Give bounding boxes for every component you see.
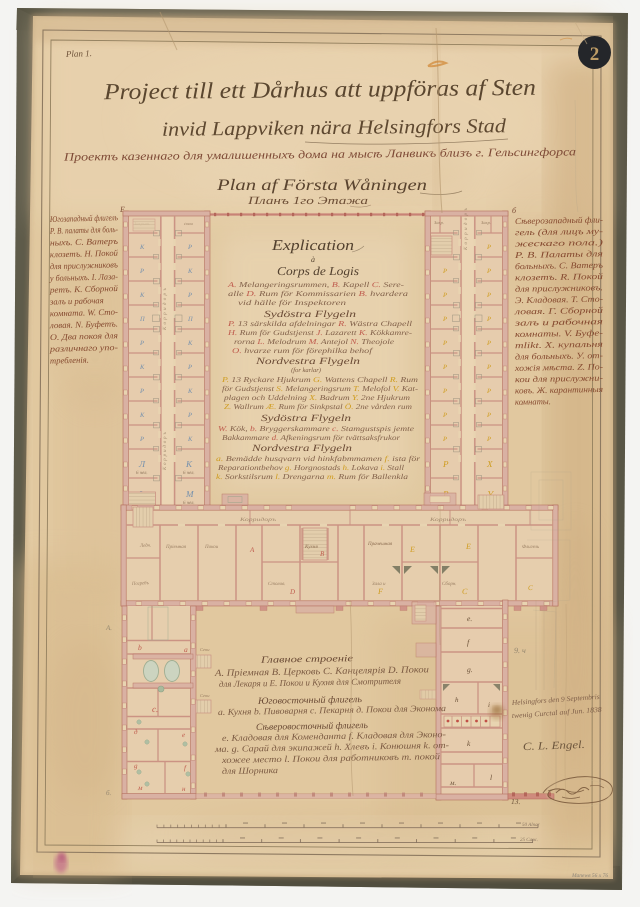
svg-text:Р: Р bbox=[442, 459, 449, 469]
svg-text:Сборн.: Сборн. bbox=[442, 581, 457, 587]
svg-text:м.: м. bbox=[449, 779, 456, 787]
svg-text:для Шорника: для Шорника bbox=[222, 765, 279, 776]
svg-text:C. L. Engel.: C. L. Engel. bbox=[523, 739, 585, 753]
svg-text:g.: g. bbox=[467, 665, 473, 674]
svg-text:Plan af Första Wåningen: Plan af Första Wåningen bbox=[216, 177, 427, 194]
svg-text:a. Bemädde husqvarn vid hin: a. Bemädde husqvarn vid hinkfabmmamen f.… bbox=[216, 454, 420, 463]
svg-text:у больныхъ. I. Лаза-: у больныхъ. I. Лаза- bbox=[49, 271, 118, 283]
svg-text:Е: Е bbox=[465, 542, 471, 551]
svg-text:Р: Р bbox=[486, 268, 491, 275]
svg-text:à: à bbox=[311, 255, 315, 264]
svg-text:О. Два покоя для: О. Два покоя для bbox=[50, 330, 118, 342]
svg-text:i: i bbox=[488, 701, 490, 709]
svg-text:залъ и рабочная: залъ и рабочная bbox=[513, 316, 603, 328]
svg-text:комнаты. V. Буфе-: комнаты. V. Буфе- bbox=[515, 327, 603, 339]
svg-text:Р: Р bbox=[442, 364, 447, 371]
svg-text:Р: Р bbox=[486, 436, 491, 443]
svg-text:А: А bbox=[249, 546, 255, 554]
svg-text:Маnewв 56 x 76: Маnewв 56 x 76 bbox=[571, 873, 608, 879]
svg-text:для прислужниковъ.: для прислужниковъ. bbox=[515, 282, 603, 294]
svg-text:Планъ 1го Этажа: Планъ 1го Этажа bbox=[247, 195, 369, 207]
svg-text:комнаты.: комнаты. bbox=[515, 396, 551, 407]
svg-text:plagen och Uddelning X. Badru: plagen och Uddelning X. Badrum Y. 2ne Hj… bbox=[223, 393, 411, 402]
svg-text:h: h bbox=[455, 696, 459, 704]
svg-text:D: D bbox=[289, 588, 295, 596]
svg-text:9. ч: 9. ч bbox=[514, 646, 526, 655]
svg-text:жескаго пола.): жескаго пола.) bbox=[515, 237, 603, 249]
svg-text:l: l bbox=[490, 773, 492, 782]
svg-text:для больныхъ. У. от-: для больныхъ. У. от- bbox=[515, 350, 603, 362]
svg-text:Прачешная: Прачешная bbox=[367, 541, 393, 547]
svg-text:H. Rum för Gudstjenst J. Laza: H. Rum för Gudstjenst J. Lazarett K. Kök… bbox=[227, 328, 413, 337]
svg-text:тlikt. Х. купальня: тlikt. Х. купальня bbox=[515, 339, 603, 351]
svg-text:k. Sorkstilsrum l. Drengarna: k. Sorkstilsrum l. Drengarna m. Rum för … bbox=[216, 472, 408, 481]
svg-text:Р: Р bbox=[139, 388, 144, 395]
svg-text:Корридоръ: Корридоръ bbox=[162, 288, 168, 331]
svg-text:Р: Р bbox=[442, 412, 447, 419]
svg-text:ловая. N. Буфетъ.: ловая. N. Буфетъ. bbox=[49, 318, 118, 330]
svg-text:Р: Р bbox=[187, 292, 192, 299]
svg-text:Х: Х bbox=[486, 459, 493, 469]
svg-text:Plan 1.: Plan 1. bbox=[65, 48, 92, 59]
svg-text:А.: А. bbox=[105, 624, 112, 632]
svg-text:Пріемная: Пріемная bbox=[165, 544, 187, 550]
svg-text:Главное строеніе: Главное строеніе bbox=[260, 654, 353, 666]
svg-text:O. hvarze rum för förephilk: O. hvarze rum för förephilka behof bbox=[232, 346, 373, 355]
svg-text:Р. В. палаты для боль-: Р. В. палаты для боль- bbox=[49, 224, 118, 236]
svg-text:2: 2 bbox=[590, 44, 600, 65]
svg-text:ретъ. К. Сборной: ретъ. К. Сборной bbox=[49, 283, 119, 295]
svg-text:залъ и рабочая: залъ и рабочая bbox=[49, 295, 104, 306]
svg-text:Югозападный флигель: Югозападный флигель bbox=[49, 212, 118, 224]
svg-text:К: К bbox=[187, 268, 193, 275]
svg-text:Закр.: Закр. bbox=[434, 220, 444, 225]
svg-text:Р: Р bbox=[486, 244, 491, 251]
svg-text:F: F bbox=[377, 587, 383, 596]
svg-text:В: В bbox=[320, 550, 325, 558]
svg-text:Р: Р bbox=[139, 268, 144, 275]
svg-text:Р: Р bbox=[442, 292, 447, 299]
svg-text:Corps de Logis: Corps de Logis bbox=[277, 264, 359, 278]
svg-text:Погребъ: Погребъ bbox=[131, 580, 150, 587]
svg-text:(for karlar): (for karlar) bbox=[291, 367, 321, 374]
svg-text:К: К bbox=[187, 388, 193, 395]
svg-text:а: а bbox=[184, 645, 188, 654]
svg-text:б.: б. bbox=[106, 789, 112, 797]
svg-text:Bakkammare d. Afkeningsrum fö: Bakkammare d. Afkeningsrum för tvättsaks… bbox=[222, 433, 400, 442]
svg-text:м: м bbox=[137, 784, 143, 792]
svg-text:6 чел.: 6 чел. bbox=[136, 470, 148, 476]
svg-text:Р: Р bbox=[139, 340, 144, 347]
svg-text:Р: Р bbox=[442, 388, 447, 395]
svg-text:Л: Л bbox=[138, 459, 146, 469]
svg-text:К: К bbox=[139, 412, 145, 419]
svg-text:13.: 13. bbox=[511, 797, 521, 806]
svg-text:Z. Wallrum Æ. Rum för Sinkpst: Z. Wallrum Æ. Rum för Sinkpstal Ö. 2ne v… bbox=[224, 402, 413, 411]
svg-text:ковъ. Ж. карантинныя: ковъ. Ж. карантинныя bbox=[515, 384, 603, 396]
svg-text:хожія мѣста. Z. По-: хожія мѣста. Z. По- bbox=[514, 361, 603, 373]
svg-text:комната. W. Сто-: комната. W. Сто- bbox=[50, 307, 118, 319]
svg-text:Р: Р bbox=[139, 436, 144, 443]
svg-text:К: К bbox=[139, 292, 145, 299]
svg-text:Р: Р bbox=[486, 316, 491, 323]
svg-text:Кухня: Кухня bbox=[304, 544, 318, 550]
svg-text:6 чел.: 6 чел. bbox=[183, 470, 195, 476]
svg-text:гель (для лицъ му-: гель (для лицъ му- bbox=[515, 226, 603, 238]
svg-text:vid hälle för Inspektoren: vid hälle för Inspektoren bbox=[238, 298, 346, 307]
svg-text:различнаго упо-: различнаго упо- bbox=[49, 342, 119, 354]
svg-text:Р. В. Палаты для: Р. В. Палаты для bbox=[513, 248, 603, 260]
svg-text:Explication: Explication bbox=[271, 238, 354, 254]
svg-text:Ледн.: Ледн. bbox=[139, 542, 152, 549]
svg-text:Р: Р bbox=[486, 292, 491, 299]
svg-text:е.: е. bbox=[467, 614, 472, 623]
svg-text:P. 13 särskilda afdelningar R: P. 13 särskilda afdelningar R. Wästra Ch… bbox=[227, 319, 412, 328]
svg-text:Сени: Сени bbox=[200, 693, 210, 698]
svg-text:Корридоръ: Корридоръ bbox=[239, 517, 277, 523]
svg-text:Р: Р bbox=[187, 244, 192, 251]
svg-text:för Gudstjenst S. Melangering: för Gudstjenst S. Melangeringsrum T. Mel… bbox=[222, 384, 419, 393]
svg-text:ловая. Г. Сборной: ловая. Г. Сборной bbox=[513, 305, 603, 317]
svg-text:Р: Р bbox=[486, 340, 491, 347]
svg-text:Nordvestra Flygeln: Nordvestra Flygeln bbox=[255, 357, 361, 367]
svg-text:кои для прислужни-: кои для прислужни- bbox=[515, 373, 603, 385]
svg-text:К: К bbox=[139, 364, 145, 371]
svg-text:Е: Е bbox=[409, 545, 415, 554]
svg-text:М: М bbox=[185, 489, 194, 499]
svg-text:Reparationtbehov g. Horgnosta: Reparationtbehov g. Horgnostads h. Lokav… bbox=[217, 463, 404, 472]
svg-text:Флигель: Флигель bbox=[522, 544, 540, 550]
svg-text:25 Саж.: 25 Саж. bbox=[520, 837, 538, 843]
svg-text:Sydöstra Flygeln: Sydöstra Flygeln bbox=[261, 414, 351, 424]
svg-text:К: К bbox=[187, 340, 193, 347]
svg-text:Покои: Покои bbox=[204, 544, 219, 550]
svg-text:invid Lappviken nära Helsingfo: invid Lappviken nära Helsingfors Stad bbox=[162, 115, 507, 141]
svg-text:A. Melangeringsrummen, B. Kape: A. Melangeringsrummen, B. Kapell C. Sere… bbox=[227, 280, 405, 289]
svg-text:rorna L. Melodrum M. Antejol: rorna L. Melodrum M. Antejol N. Theojole bbox=[234, 337, 395, 346]
svg-text:клозетъ. Н. Покой: клозетъ. Н. Покой bbox=[50, 248, 119, 260]
svg-text:С: С bbox=[528, 584, 533, 592]
svg-text:Project till ett Dårhus att up: Project till ett Dårhus att uppföras af … bbox=[103, 75, 536, 105]
svg-text:съни: съни bbox=[184, 221, 194, 226]
svg-text:Корридоръ: Корридоръ bbox=[162, 432, 168, 471]
svg-text:для прислужниковъ: для прислужниковъ bbox=[50, 259, 119, 271]
svg-text:g: g bbox=[134, 762, 138, 770]
svg-text:требленія.: требленія. bbox=[50, 355, 89, 366]
svg-text:Р: Р bbox=[187, 412, 192, 419]
svg-text:Р: Р bbox=[442, 340, 447, 347]
svg-text:Сени: Сени bbox=[200, 647, 210, 652]
svg-text:Э. Кладовая. Т. Сто-: Э. Кладовая. Т. Сто- bbox=[515, 294, 603, 306]
svg-text:С: С bbox=[462, 587, 468, 596]
svg-text:Р: Р bbox=[187, 364, 192, 371]
svg-text:клозетъ. R. Покой: клозетъ. R. Покой bbox=[515, 271, 604, 283]
svg-text:К: К bbox=[139, 244, 145, 251]
svg-text:ныхъ. С. Ватеръ: ныхъ. С. Ватеръ bbox=[50, 236, 119, 248]
svg-text:Nordvestra Flygeln: Nordvestra Flygeln bbox=[251, 444, 353, 454]
svg-text:Р: Р bbox=[486, 388, 491, 395]
svg-text:с.: с. bbox=[152, 704, 158, 714]
svg-text:W. Kök, b. Bryggerskammare c.: W. Kök, b. Bryggerskammare c. Stamgustsp… bbox=[218, 424, 415, 433]
svg-text:P. 13 Ryckare Hjukrum G. Watt: P. 13 Ryckare Hjukrum G. Wattens Chapell… bbox=[221, 375, 419, 384]
svg-text:д: д bbox=[134, 728, 138, 736]
svg-text:больныхъ. С. Ватеръ: больныхъ. С. Ватеръ bbox=[515, 260, 604, 272]
svg-text:К: К bbox=[185, 459, 193, 469]
svg-text:Р: Р bbox=[486, 364, 491, 371]
svg-text:Столов.: Столов. bbox=[268, 581, 286, 587]
svg-text:н: н bbox=[182, 785, 186, 793]
svg-text:Сѣверозападный фли-: Сѣверозападный фли- bbox=[515, 214, 603, 226]
svg-text:b: b bbox=[138, 643, 142, 652]
svg-text:Р: Р bbox=[442, 268, 447, 275]
svg-text:Р: Р bbox=[486, 412, 491, 419]
svg-text:е: е bbox=[182, 731, 185, 739]
svg-text:Р: Р bbox=[442, 436, 447, 443]
svg-text:Закр.: Закр. bbox=[481, 220, 491, 225]
svg-text:alle D. Rum för Kommissarien: alle D. Rum för Kommissarien B. hvardera bbox=[228, 289, 408, 298]
svg-text:50 Alnar: 50 Alnar bbox=[522, 822, 540, 828]
svg-text:Корридоръ: Корридоръ bbox=[463, 208, 469, 251]
svg-text:Корридоръ: Корридоръ bbox=[429, 517, 467, 523]
svg-text:Р: Р bbox=[442, 316, 447, 323]
svg-text:К: К bbox=[187, 436, 193, 443]
